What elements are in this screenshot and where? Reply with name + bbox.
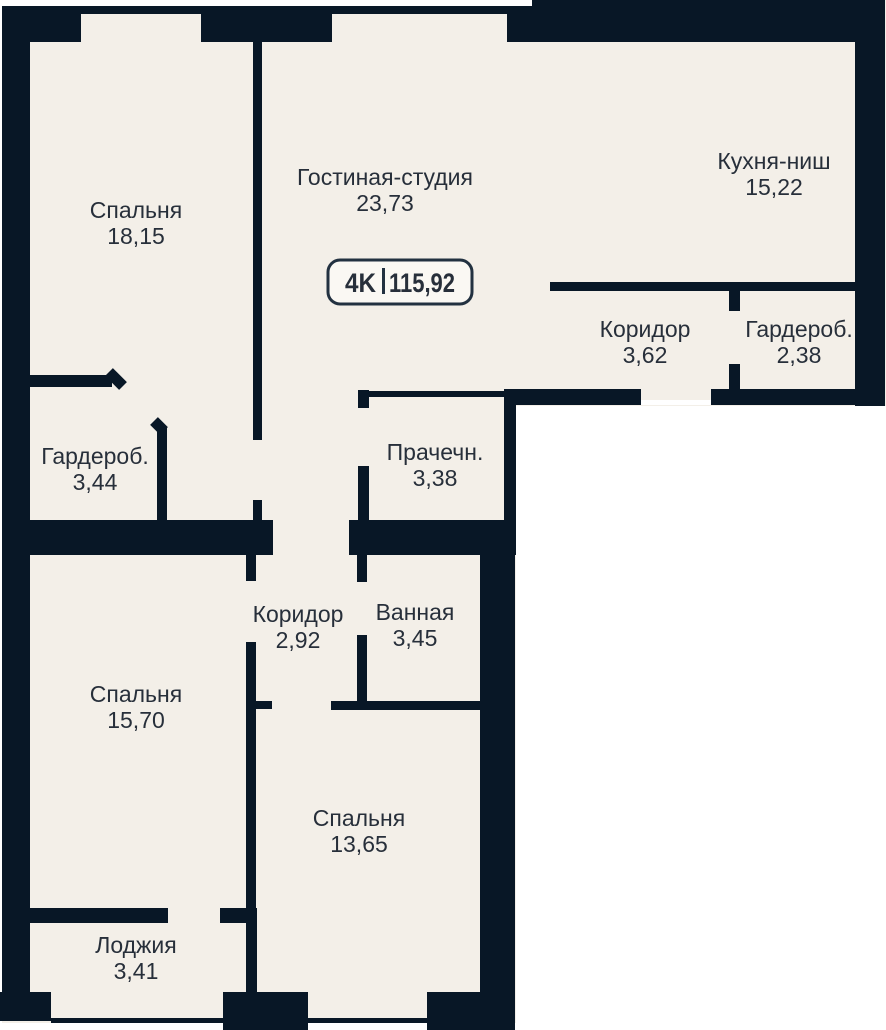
svg-text:Спальня: Спальня: [90, 681, 182, 707]
svg-text:Коридор: Коридор: [600, 316, 691, 342]
svg-text:115,92: 115,92: [389, 268, 455, 298]
svg-text:Гардероб.: Гардероб.: [745, 316, 853, 342]
svg-text:3,41: 3,41: [114, 958, 159, 984]
svg-text:Лоджия: Лоджия: [95, 932, 177, 958]
svg-text:Спальня: Спальня: [313, 805, 405, 831]
svg-text:Прачечн.: Прачечн.: [387, 439, 484, 465]
svg-text:23,73: 23,73: [356, 190, 414, 216]
svg-text:Кухня-ниш: Кухня-ниш: [717, 148, 830, 174]
svg-text:Коридор: Коридор: [253, 601, 344, 627]
svg-text:Гостиная-студия: Гостиная-студия: [297, 164, 473, 190]
svg-text:3,62: 3,62: [623, 342, 668, 368]
svg-text:2,92: 2,92: [276, 627, 321, 653]
svg-text:18,15: 18,15: [107, 223, 165, 249]
svg-text:3,45: 3,45: [393, 625, 438, 651]
svg-text:Спальня: Спальня: [90, 197, 182, 223]
svg-text:3,44: 3,44: [73, 469, 118, 495]
svg-text:13,65: 13,65: [330, 831, 388, 857]
svg-text:15,70: 15,70: [107, 707, 165, 733]
svg-text:4K: 4K: [345, 268, 376, 298]
svg-text:Гардероб.: Гардероб.: [41, 443, 149, 469]
svg-text:3,38: 3,38: [413, 465, 458, 491]
svg-text:Ванная: Ванная: [376, 599, 455, 625]
svg-text:2,38: 2,38: [777, 342, 822, 368]
svg-text:15,22: 15,22: [745, 174, 803, 200]
